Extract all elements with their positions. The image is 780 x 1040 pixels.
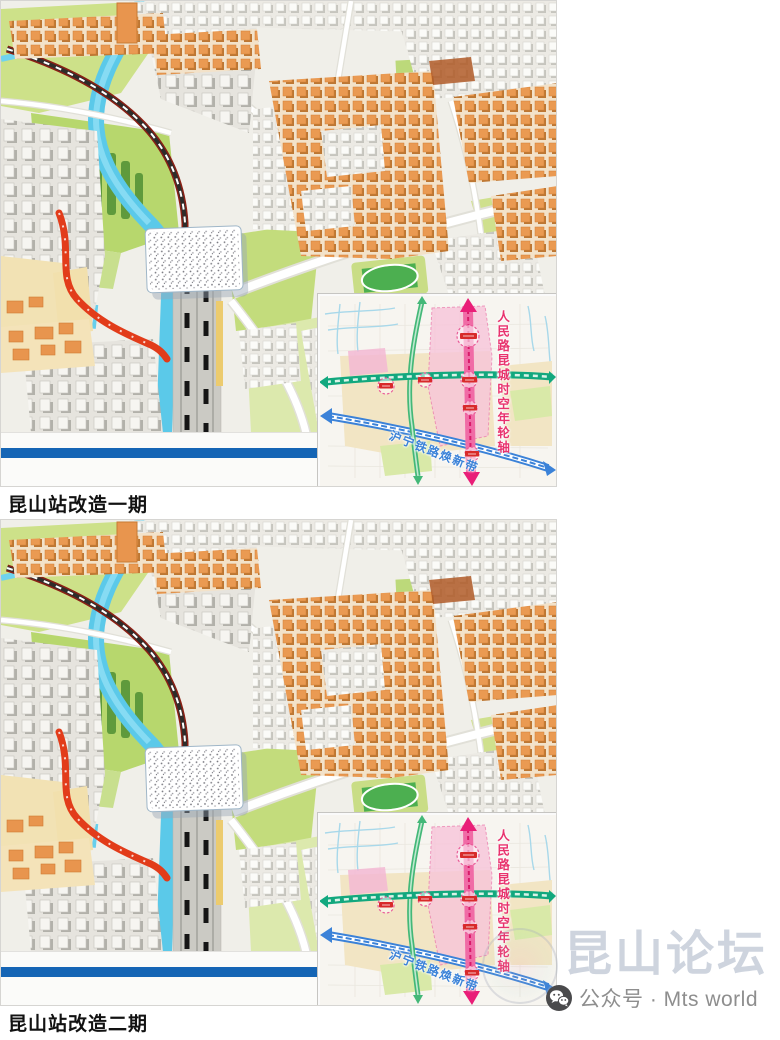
watermark: 昆山论坛 公众号 · Mts world — [546, 930, 780, 1013]
figure-caption-phase1: 昆山站改造一期 — [0, 488, 557, 519]
inset-map: 人民路昆城时空年轮轴 沪宁铁路焕新带 — [318, 294, 557, 487]
inset-axis-label: 人民路昆城时空年轮轴 — [495, 310, 508, 468]
article-page: 人民路昆城时空年轮轴 沪宁铁路焕新带 昆山站改造一期 人民路昆城时空年轮轴 沪宁… — [0, 0, 780, 1040]
forum-stamp-watermark — [482, 928, 558, 1004]
watermark-subtitle: 公众号 · Mts world — [579, 983, 758, 1013]
phase2-figure: 人民路昆城时空年轮轴 沪宁铁路焕新带 — [0, 519, 557, 1006]
phase1-figure: 人民路昆城时空年轮轴 沪宁铁路焕新带 — [0, 0, 557, 487]
watermark-title: 昆山论坛 — [564, 930, 780, 980]
slide-accent-stripe — [1, 967, 319, 977]
slide-accent-stripe — [1, 448, 319, 458]
figure-caption-phase2: 昆山站改造二期 — [0, 1007, 557, 1038]
